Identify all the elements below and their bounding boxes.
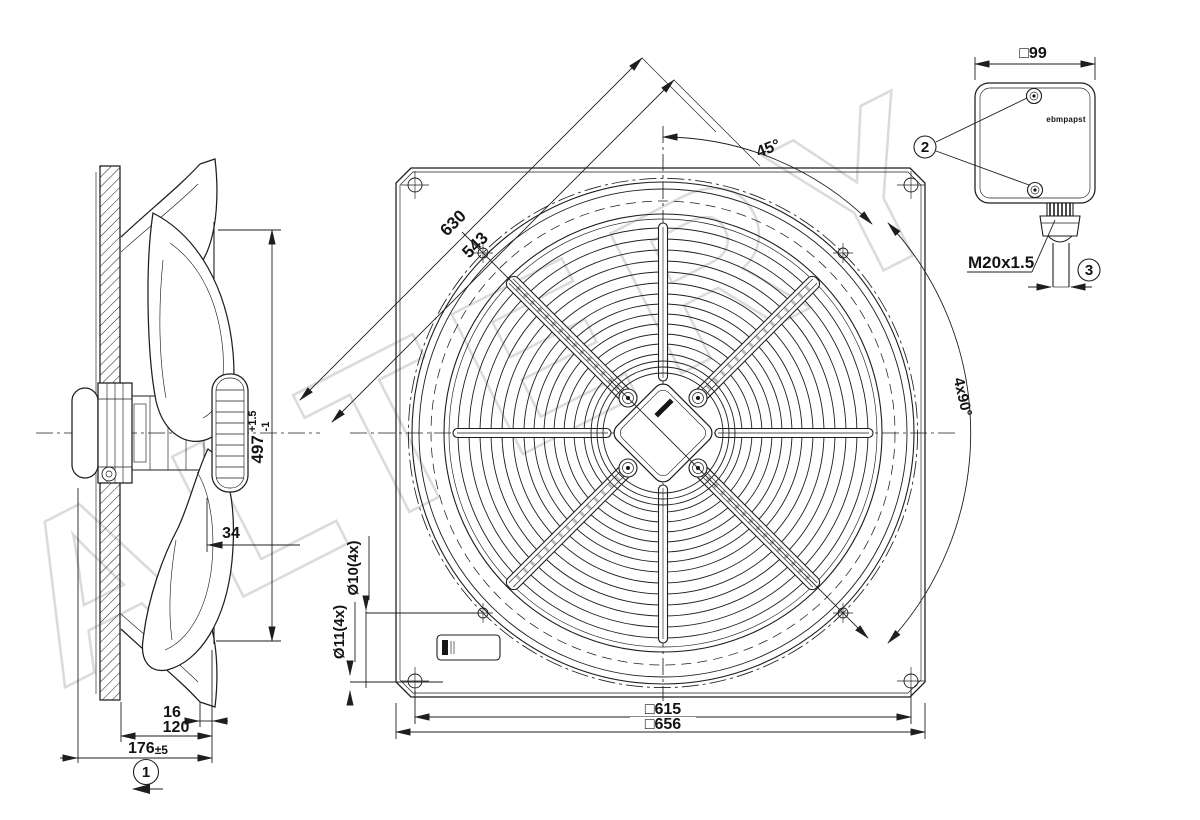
terminal-box-screw-top [1027, 89, 1042, 104]
cable-gland [1040, 203, 1080, 242]
cable [1053, 243, 1069, 287]
callout-1-number: 1 [142, 764, 150, 781]
dim-o10-text: Ø10(4x) [345, 540, 362, 595]
gland-thread-text: M20x1.5 [968, 253, 1034, 272]
dim-176-text: 176±5 [128, 740, 168, 757]
callout-2-number: 2 [921, 139, 929, 156]
dim-34-text: 34 [222, 525, 240, 542]
corner-hole [401, 171, 429, 199]
dim-holes-corner: Ø11(4x) [331, 602, 443, 704]
dim-99-text: □99 [1019, 45, 1047, 62]
technical-drawing-canvas: ALTERY [0, 0, 1200, 820]
callout-1: 1 [133, 760, 163, 790]
dim-o11-text: Ø11(4x) [331, 605, 348, 659]
side-motor [72, 383, 132, 483]
dim-box-square: □99 [975, 45, 1095, 80]
motor-gland [102, 467, 116, 481]
terminal-box-logo: ebmpapst [1046, 115, 1086, 124]
side-rotor-ring [212, 374, 248, 492]
dim-120-text: 120 [163, 719, 190, 736]
dim-656-text: □656 [645, 716, 681, 733]
nameplate-label [437, 635, 500, 660]
callout-3-number: 3 [1085, 262, 1093, 279]
dim-4x90-text: 4x90° [950, 376, 975, 418]
terminal-box-screw-bottom [1028, 183, 1043, 198]
fan-dimension-drawing: ALTERY [0, 0, 1200, 820]
callout-3: 3 [1028, 259, 1100, 287]
